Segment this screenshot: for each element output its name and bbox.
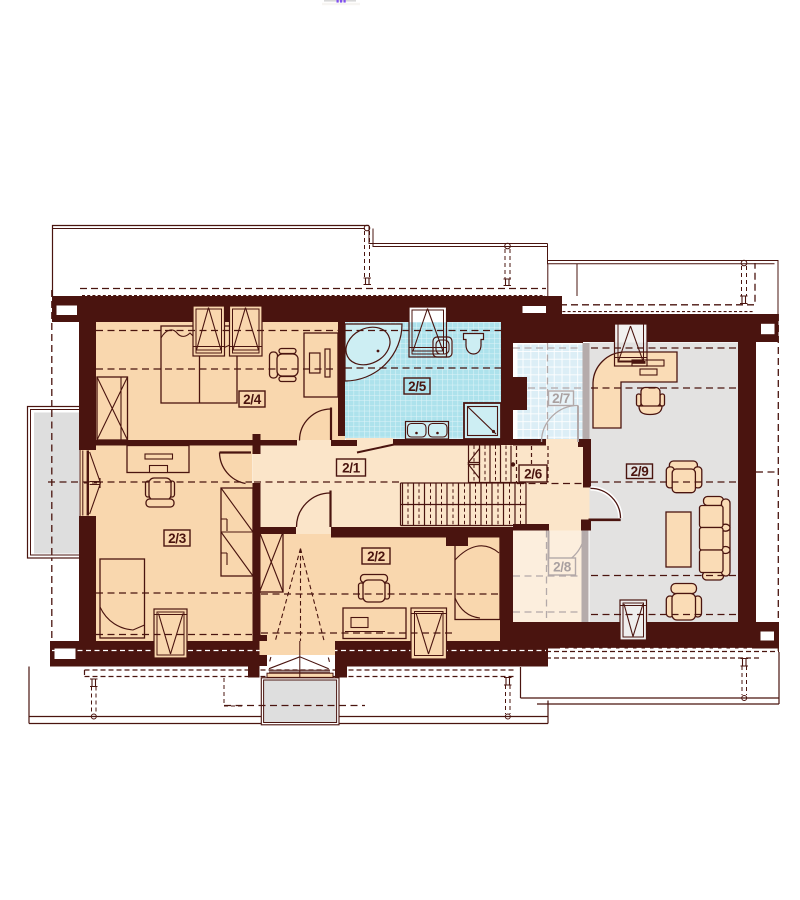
svg-text:2/1: 2/1 <box>342 461 361 476</box>
svg-text:2/5: 2/5 <box>408 379 427 394</box>
svg-text:2/7: 2/7 <box>552 391 570 406</box>
svg-text:2/9: 2/9 <box>631 464 649 479</box>
svg-text:2/2: 2/2 <box>367 549 385 564</box>
svg-text:2/6: 2/6 <box>524 467 543 482</box>
svg-text:2/8: 2/8 <box>553 560 572 575</box>
svg-text:2/4: 2/4 <box>243 392 262 407</box>
svg-text:2/3: 2/3 <box>168 531 187 546</box>
